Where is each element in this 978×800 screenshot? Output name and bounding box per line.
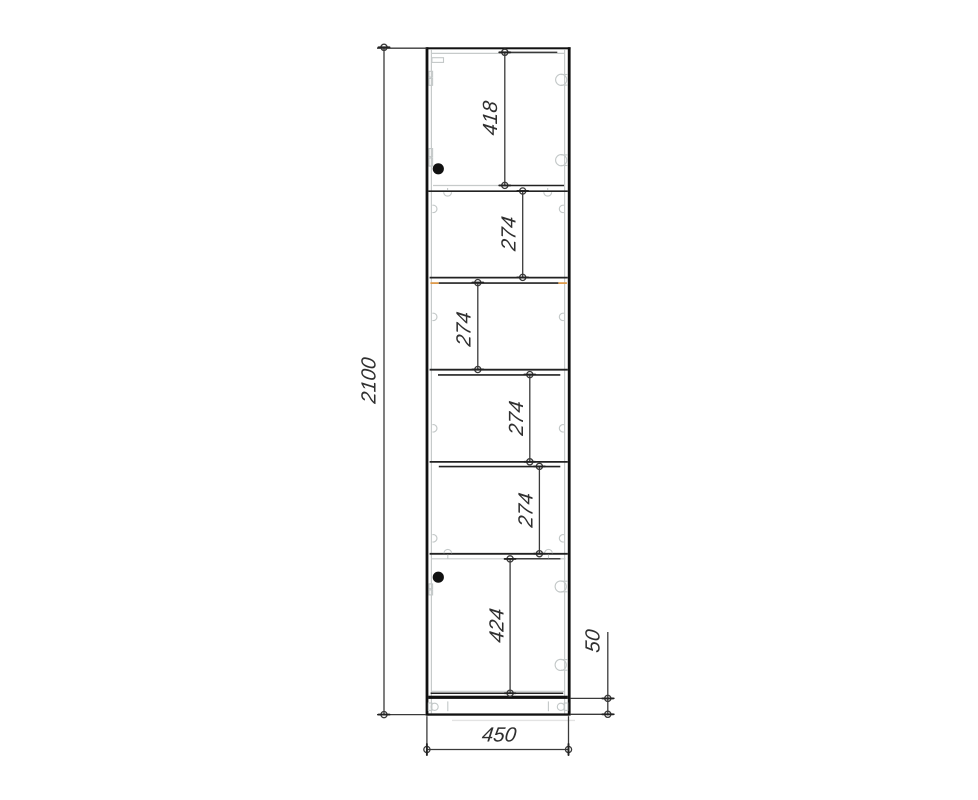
svg-text:418: 418 xyxy=(479,99,502,137)
svg-text:274: 274 xyxy=(505,400,528,438)
svg-text:274: 274 xyxy=(453,310,476,348)
svg-text:274: 274 xyxy=(498,215,521,253)
svg-text:274: 274 xyxy=(515,491,538,529)
svg-text:450: 450 xyxy=(481,724,519,747)
svg-text:50: 50 xyxy=(582,628,605,654)
svg-text:2100: 2100 xyxy=(358,356,381,406)
svg-text:424: 424 xyxy=(486,607,509,644)
